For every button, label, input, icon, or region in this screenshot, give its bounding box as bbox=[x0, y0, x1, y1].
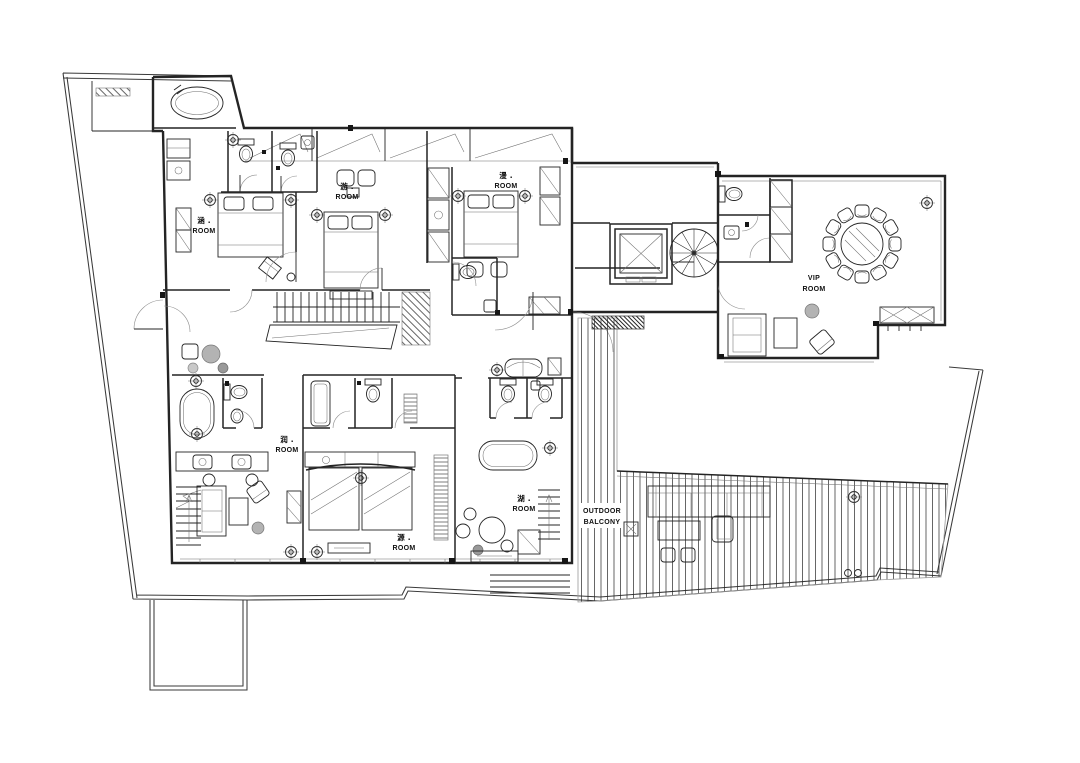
nightstand-lamp-icon bbox=[517, 188, 533, 204]
coffee-table bbox=[774, 318, 797, 348]
love-seat bbox=[505, 359, 542, 377]
pillow bbox=[253, 197, 273, 210]
room-label: ROOM bbox=[393, 545, 416, 552]
toilet-icon bbox=[537, 379, 553, 402]
stool bbox=[464, 508, 476, 520]
room-label: ROOM bbox=[495, 183, 518, 190]
armchair bbox=[246, 480, 270, 504]
terrace-hot-tub bbox=[167, 85, 223, 180]
nightstand-lamp-icon bbox=[309, 207, 325, 223]
pillow bbox=[328, 216, 348, 229]
stool bbox=[456, 524, 470, 538]
room-label: ROOM bbox=[803, 286, 826, 293]
ceiling-light-icon bbox=[353, 470, 369, 486]
bed-double bbox=[362, 468, 412, 530]
pillow bbox=[352, 216, 372, 229]
ceiling-fan-icon bbox=[919, 195, 935, 211]
site-boundary bbox=[63, 73, 983, 690]
pillow bbox=[468, 195, 489, 208]
sink-icon bbox=[484, 300, 496, 312]
room-label: ROOM bbox=[336, 194, 359, 201]
bench bbox=[259, 257, 282, 279]
floor-light-icon bbox=[489, 362, 505, 378]
site-bump-south-west bbox=[150, 600, 247, 690]
floor-light-icon bbox=[283, 544, 299, 560]
room-label: ROOM bbox=[276, 447, 299, 454]
room-label: 湖 . bbox=[517, 493, 531, 503]
bedroom-yuan: 源 . ROOM bbox=[283, 379, 448, 560]
stair-ramp-hatch bbox=[402, 292, 430, 345]
toilet-icon bbox=[719, 186, 742, 202]
bedroom-han: 涵 . ROOM bbox=[176, 192, 299, 281]
stool bbox=[203, 474, 215, 486]
tub-faucet-icon bbox=[542, 440, 558, 456]
entry-door bbox=[134, 300, 163, 329]
radiator-cabinet bbox=[434, 455, 448, 540]
coffee-table bbox=[229, 498, 248, 525]
spiral-staircase bbox=[670, 229, 718, 277]
door-swings bbox=[164, 252, 613, 352]
armchair bbox=[809, 329, 836, 356]
bed-double bbox=[309, 468, 359, 530]
stool bbox=[473, 545, 483, 555]
pillow bbox=[493, 195, 514, 208]
stool bbox=[246, 474, 258, 486]
room-label: 涵 . bbox=[197, 215, 211, 225]
vip-sofa-group bbox=[728, 304, 835, 356]
stool bbox=[501, 540, 513, 552]
towel-rail bbox=[404, 394, 417, 423]
room-label: ROOM bbox=[193, 228, 216, 235]
vip-wardrobe bbox=[770, 180, 792, 262]
sink-icon bbox=[232, 455, 251, 469]
room-label: VIP bbox=[808, 275, 820, 282]
spa-bathtub bbox=[479, 441, 537, 470]
round-table bbox=[479, 517, 505, 543]
floor-light-icon bbox=[309, 544, 325, 560]
vip-bathroom bbox=[719, 186, 770, 258]
vip-wing-walls bbox=[718, 176, 945, 362]
garden-steps bbox=[490, 575, 570, 593]
nightstand-lamp-icon bbox=[377, 207, 393, 223]
elevator bbox=[615, 229, 667, 282]
pouf bbox=[805, 304, 819, 318]
vip-room: VIP ROOM bbox=[718, 180, 935, 356]
double-vanity bbox=[176, 452, 268, 471]
room-hu: 湖 . ROOM bbox=[456, 358, 561, 562]
room-label: 润 . bbox=[280, 434, 294, 444]
armchair bbox=[358, 170, 375, 186]
lounge-south-west bbox=[176, 480, 301, 545]
north-west-wall-block bbox=[92, 81, 153, 131]
floor-plan-page: 涵 . ROOM 游 . ROOM 漫 . ROOM bbox=[0, 0, 1080, 763]
toilet-icon bbox=[224, 384, 247, 400]
bench bbox=[330, 291, 372, 299]
room-label: 游 . bbox=[340, 181, 354, 191]
nightstand-lamp-icon bbox=[202, 192, 218, 208]
garden-stepping-stones bbox=[182, 344, 228, 389]
toilet-icon bbox=[500, 379, 516, 402]
step-hatch bbox=[592, 316, 644, 329]
tub-faucet-icon bbox=[189, 426, 205, 442]
bed-double bbox=[324, 212, 378, 288]
floor-plan-drawing: 涵 . ROOM 游 . ROOM 漫 . ROOM bbox=[0, 0, 1080, 763]
toilet-icon bbox=[365, 379, 381, 402]
area-label: BALCONY bbox=[584, 519, 621, 526]
bathroom-pair bbox=[225, 132, 314, 192]
sink-icon bbox=[724, 226, 739, 239]
room-label: 漫 . bbox=[499, 170, 513, 180]
armchair bbox=[491, 262, 507, 277]
bedroom-man: 漫 . ROOM bbox=[450, 167, 560, 314]
suite-run-bath: 润 . ROOM bbox=[176, 381, 298, 486]
central-staircase bbox=[266, 292, 430, 349]
sink-icon bbox=[531, 381, 540, 390]
pillow bbox=[224, 197, 244, 210]
room-label: 源 . bbox=[397, 532, 411, 542]
window-bay-north bbox=[245, 128, 570, 161]
toilet-icon bbox=[453, 264, 476, 280]
window-bench bbox=[880, 307, 934, 323]
area-label: OUTDOOR bbox=[583, 508, 621, 515]
toilet-icon bbox=[280, 143, 296, 166]
bed-double bbox=[464, 191, 518, 257]
pouf bbox=[252, 522, 264, 534]
room-label: ROOM bbox=[513, 506, 536, 513]
bedroom-you: 游 . ROOM bbox=[309, 168, 449, 299]
round-dining-table bbox=[841, 223, 883, 265]
sink-icon bbox=[193, 455, 212, 469]
toilet-icon bbox=[238, 139, 254, 162]
